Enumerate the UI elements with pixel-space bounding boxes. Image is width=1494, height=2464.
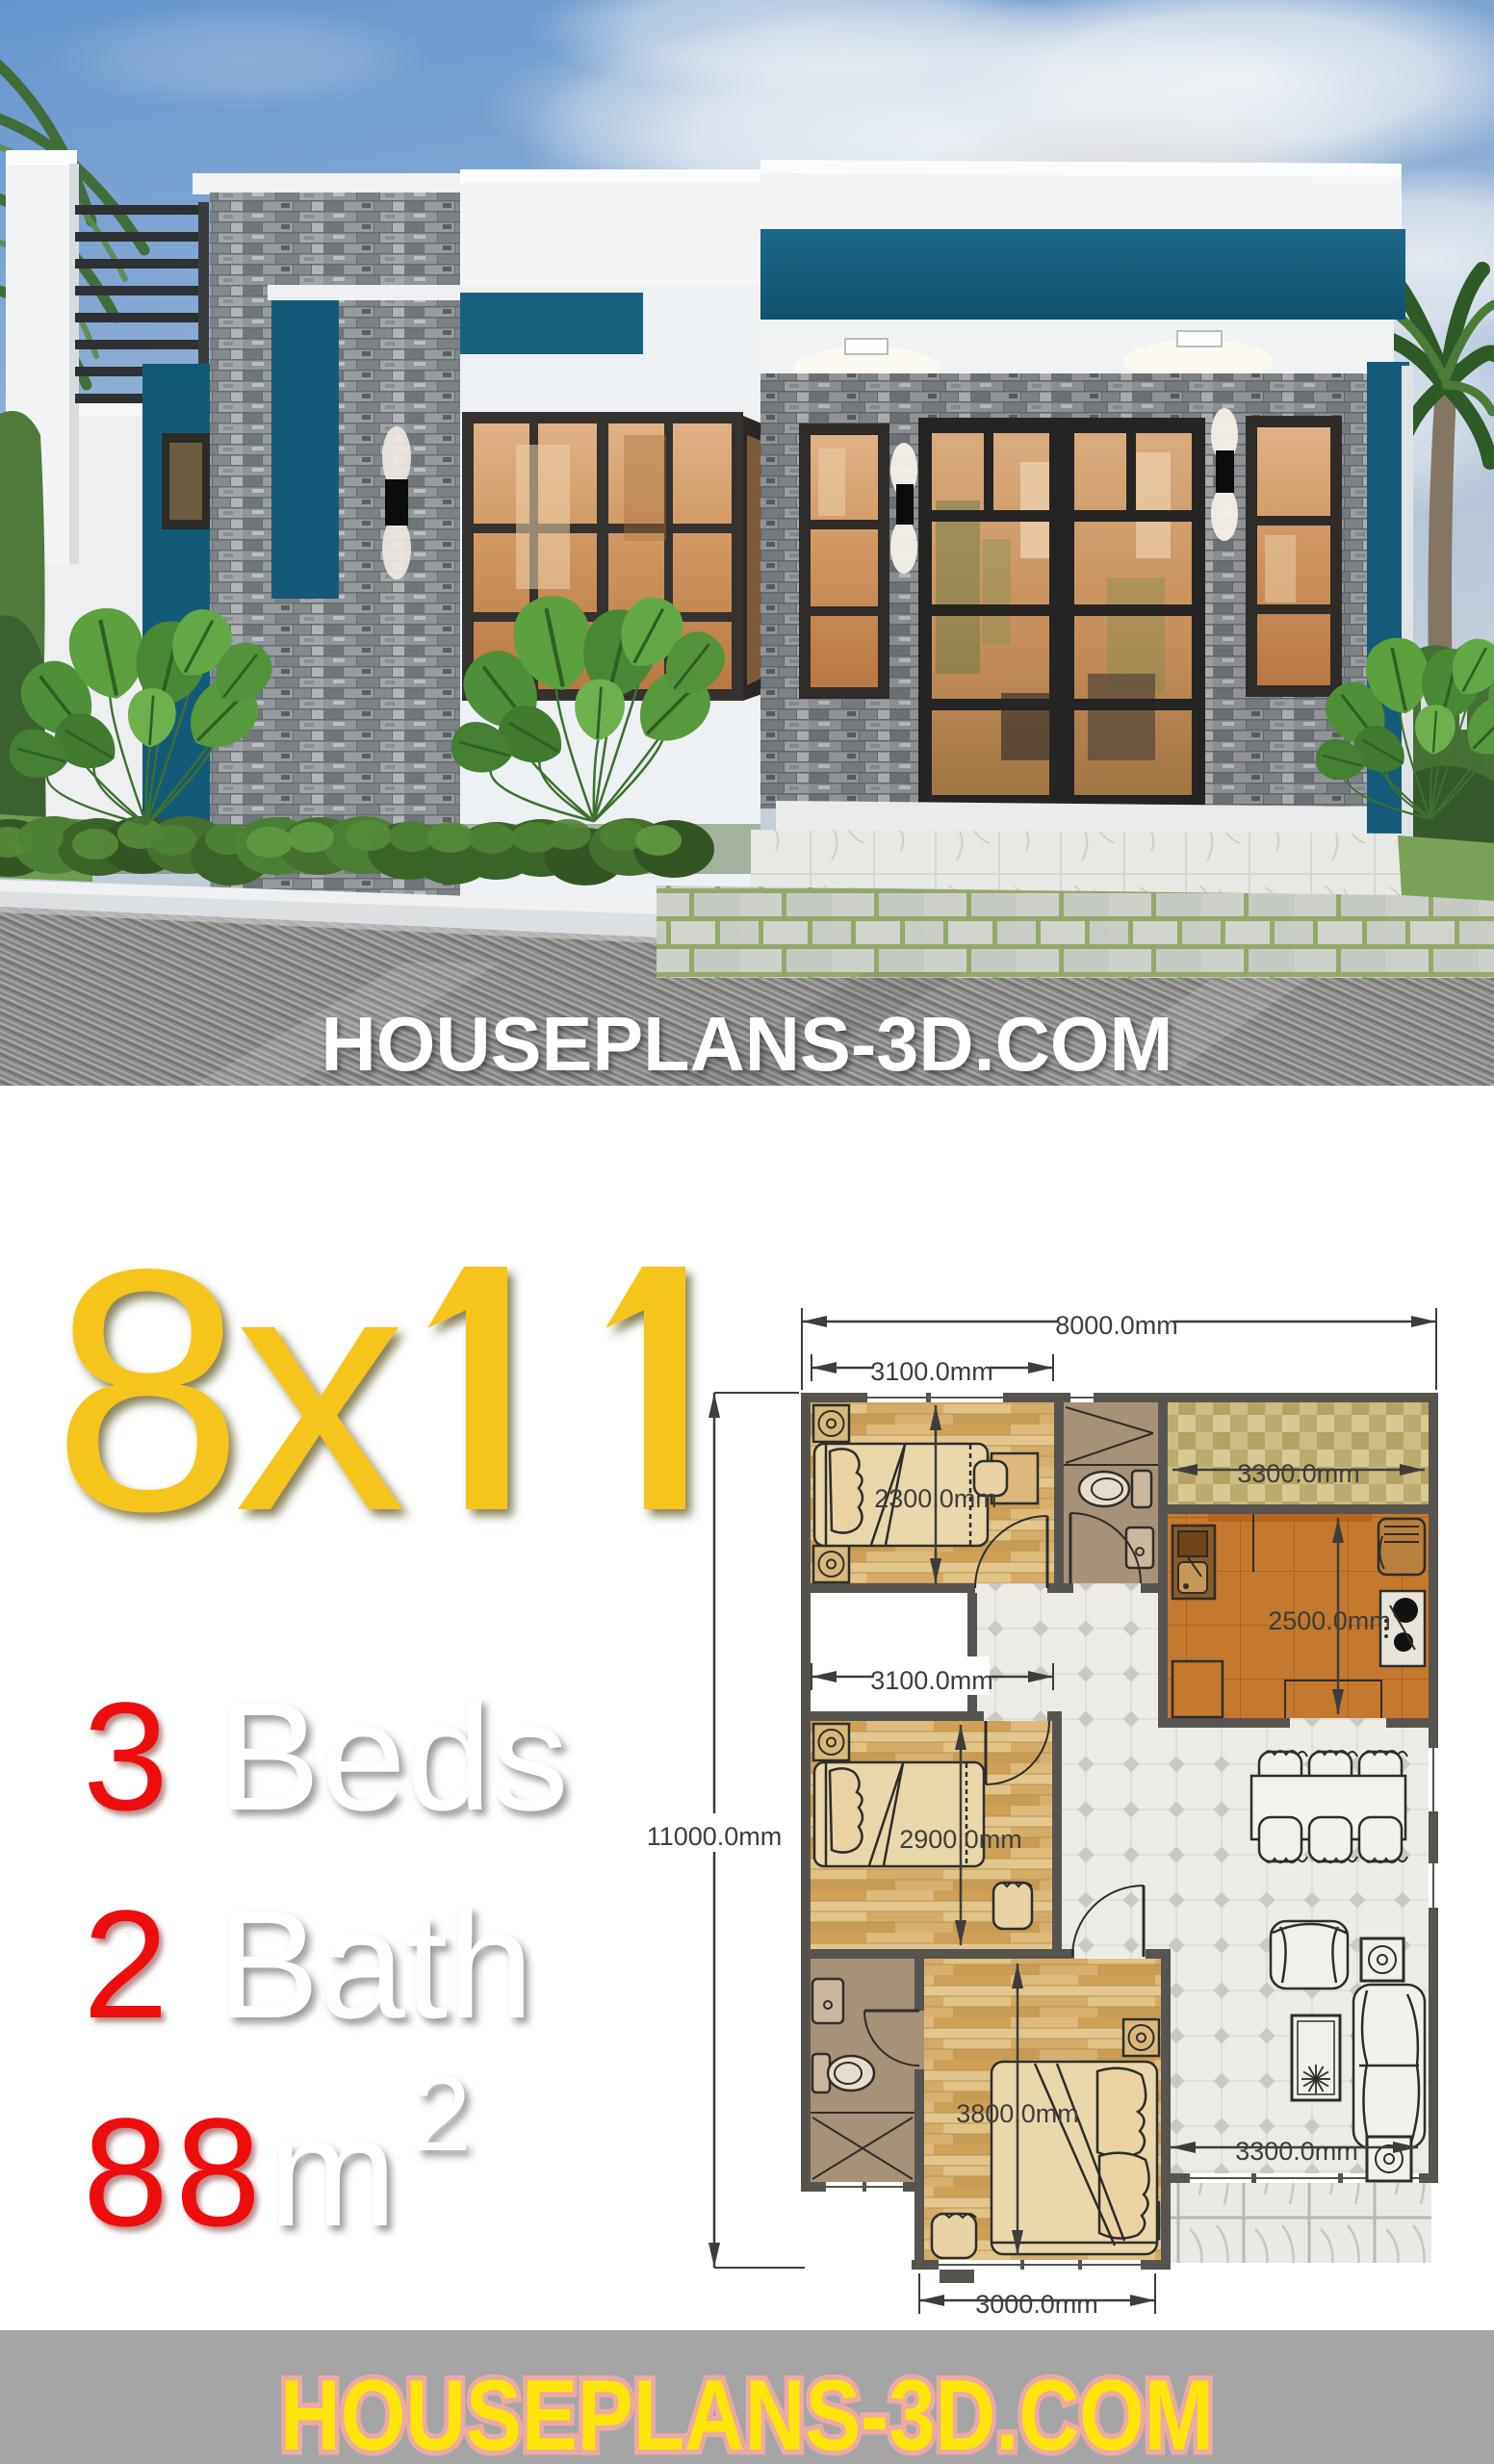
svg-text:3100.0mm: 3100.0mm [870,1666,993,1695]
svg-text:8: 8 [52,1197,244,1582]
svg-text:2900.0mm: 2900.0mm [899,1825,1022,1854]
svg-text:11000.0mm: 11000.0mm [647,1822,783,1851]
svg-text:2: 2 [83,1878,168,2050]
svg-text:2: 2 [412,2055,471,2173]
svg-text:Beds: Beds [218,1670,569,1842]
svg-text:3300.0mm: 3300.0mm [1235,2137,1358,2166]
svg-text:3000.0mm: 3000.0mm [975,2290,1098,2319]
svg-text:2300.0mm: 2300.0mm [874,1484,997,1513]
svg-text:m: m [269,2086,397,2258]
svg-text:3100.0mm: 3100.0mm [870,1357,993,1386]
svg-text:Bath: Bath [217,1878,533,2050]
svg-text:88: 88 [83,2086,268,2258]
svg-text:8000.0mm: 8000.0mm [1055,1311,1178,1340]
svg-text:HOUSEPLANS-3D.COM: HOUSEPLANS-3D.COM [280,2360,1214,2464]
svg-text:2500.0mm: 2500.0mm [1268,1606,1391,1635]
svg-text:x: x [234,1197,406,1582]
svg-text:3800.0mm: 3800.0mm [956,2099,1079,2128]
svg-text:HOUSEPLANS-3D.COM: HOUSEPLANS-3D.COM [322,1001,1173,1086]
svg-text:3: 3 [83,1670,168,1842]
svg-text:3300.0mm: 3300.0mm [1237,1459,1360,1488]
